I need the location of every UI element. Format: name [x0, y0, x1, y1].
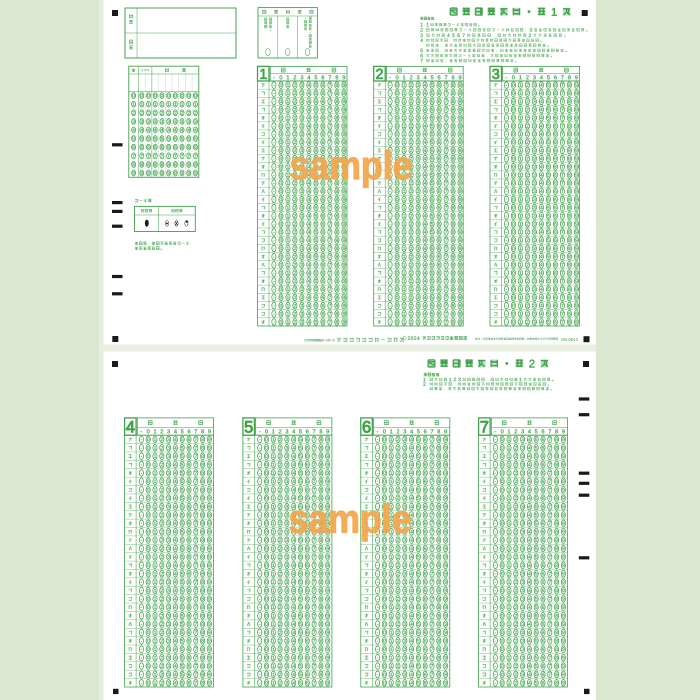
- svg-text:sample: sample: [290, 144, 413, 188]
- svg-text:SN-0643: SN-0643: [561, 337, 579, 342]
- svg-text:sample: sample: [289, 497, 412, 541]
